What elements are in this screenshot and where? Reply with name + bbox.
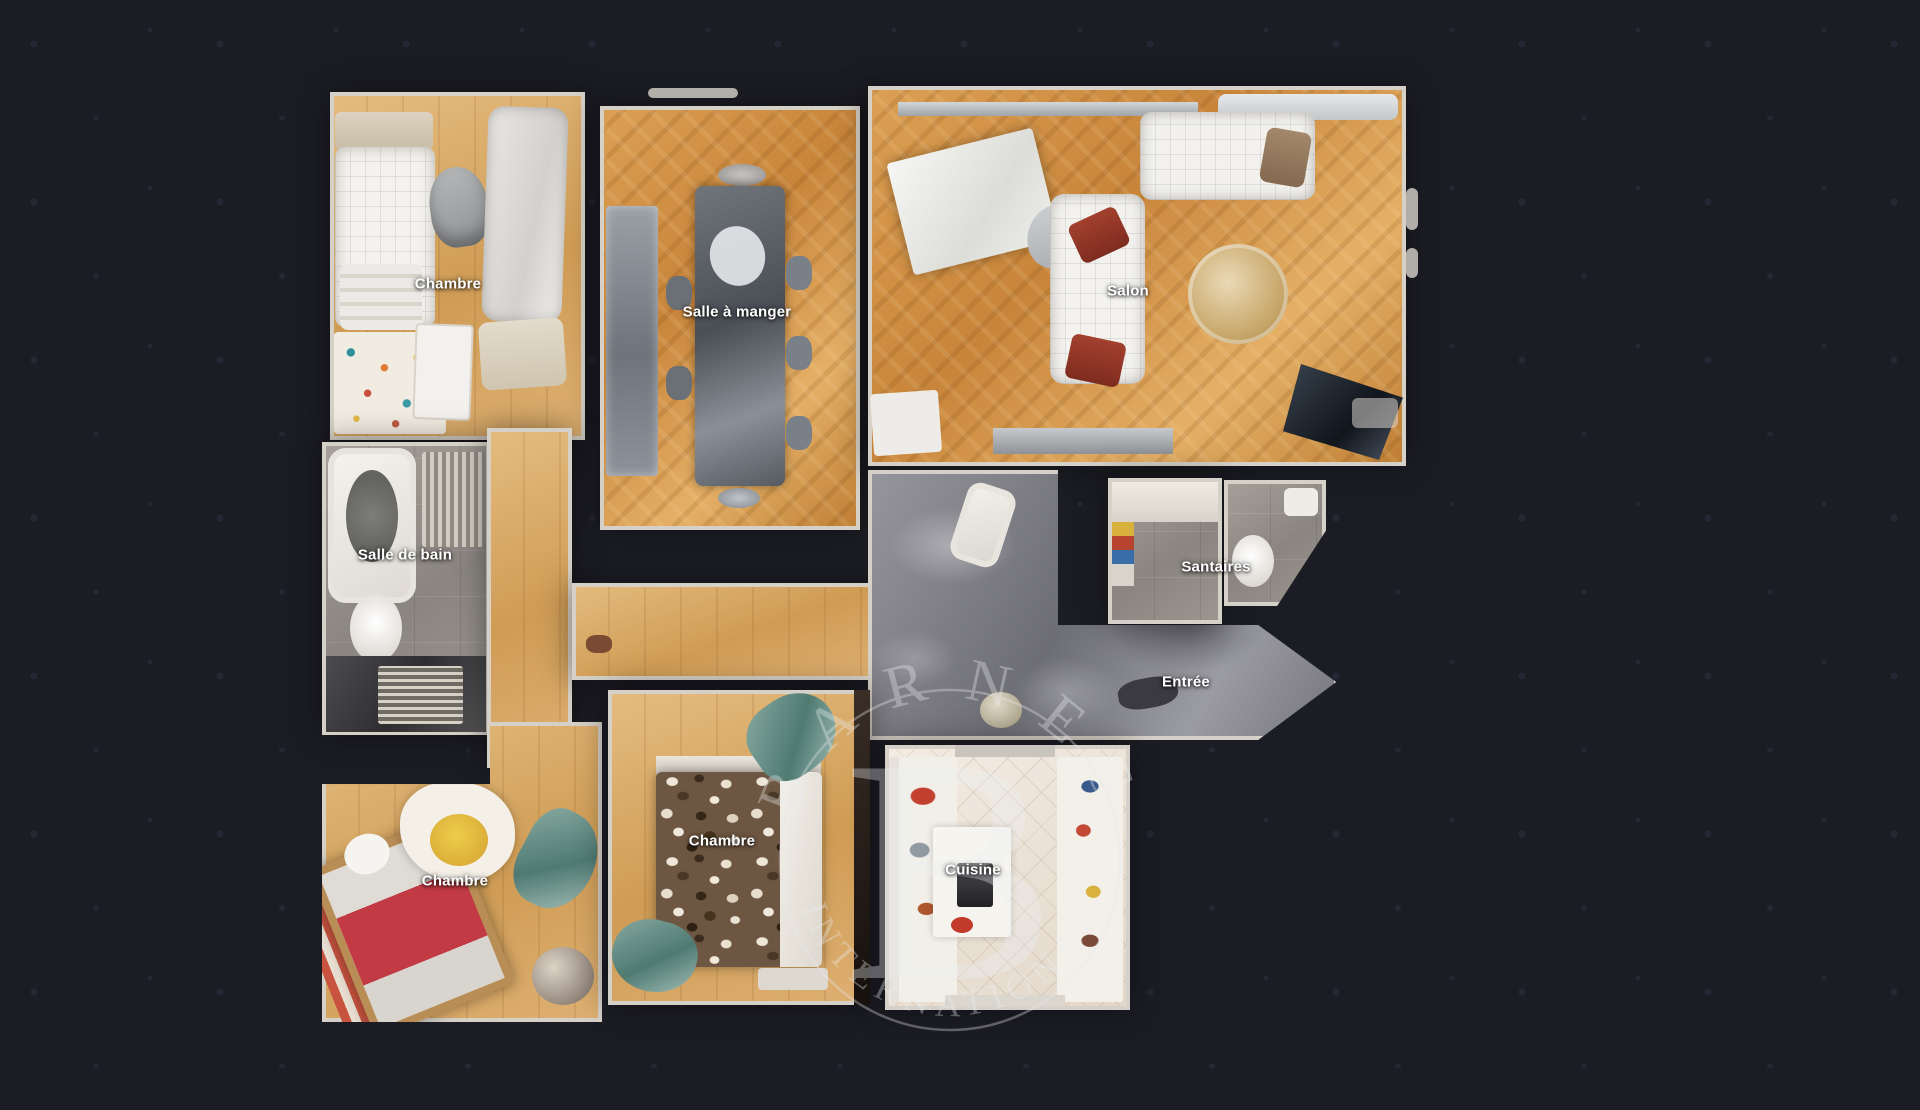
sideboard [606, 206, 658, 476]
stool [980, 692, 1022, 728]
round-chair [532, 947, 594, 1005]
shower-mat [378, 666, 463, 724]
baseboard [945, 995, 1065, 1007]
armchair [425, 163, 494, 250]
room-chambre-sud-ouest[interactable] [322, 722, 602, 1022]
scan-debris [648, 88, 738, 98]
red-object [951, 917, 973, 933]
room-salle-a-manger[interactable] [600, 106, 860, 530]
dining-chair [666, 366, 692, 400]
dining-chair [666, 276, 692, 310]
floor-clutter [1116, 673, 1180, 713]
linen-pile [340, 264, 422, 330]
chaise-mattress [481, 106, 568, 324]
appliance [957, 863, 993, 907]
throw-blanket [1259, 127, 1313, 189]
round-glass-table [1188, 244, 1288, 344]
side-table [870, 390, 942, 457]
headboard [335, 112, 433, 150]
toilet [1232, 535, 1274, 587]
corridor-horizontal[interactable] [572, 583, 878, 680]
bed-sheet [780, 772, 822, 967]
floor-lamp [718, 488, 760, 508]
toilet [947, 479, 1019, 571]
pass-through [955, 745, 1055, 757]
sink [1284, 488, 1318, 516]
scan-debris [1406, 188, 1418, 230]
room-chambre-nord[interactable] [330, 92, 585, 440]
armchair [501, 798, 602, 922]
shoes [586, 635, 612, 653]
counter-right [1057, 757, 1123, 1002]
room-salle-de-bain[interactable] [322, 442, 490, 735]
toilet [350, 594, 402, 662]
bath-mat [346, 470, 398, 562]
yellow-rug [430, 814, 488, 866]
side-table [412, 323, 473, 421]
shelving [1112, 482, 1218, 522]
ceiling-lamp [718, 164, 766, 186]
dining-chair [786, 256, 812, 290]
scan-debris [1352, 398, 1398, 428]
room-cuisine[interactable] [885, 745, 1130, 1010]
room-salon[interactable] [868, 86, 1406, 466]
storage-strip [1112, 522, 1134, 586]
shower-rug [422, 452, 484, 547]
dining-chair [786, 416, 812, 450]
floorplan-canvas[interactable]: Chambre Salle à manger Salon Salle de ba… [0, 0, 1920, 1080]
scan-debris [1406, 248, 1418, 278]
room-santaires-a[interactable] [1108, 478, 1222, 624]
credenza [993, 428, 1173, 454]
dark-wall-strip [854, 690, 870, 1005]
corridor-vertical[interactable] [487, 428, 572, 768]
dining-chair [786, 336, 812, 370]
room-santaires-b[interactable] [1224, 480, 1326, 606]
bench [758, 968, 828, 990]
room-chambre-sud[interactable] [608, 690, 870, 1005]
cushion-stack [478, 317, 568, 391]
